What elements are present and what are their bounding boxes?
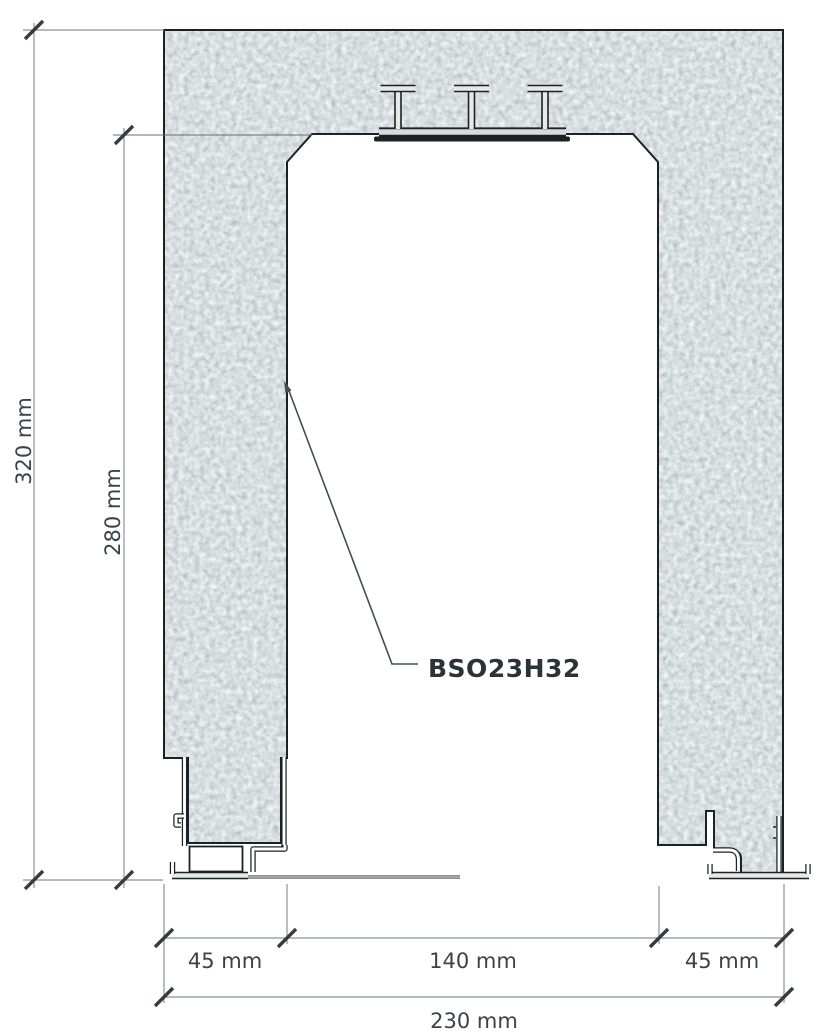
- leader-line: [286, 383, 418, 664]
- dim-label-45-left: 45 mm: [188, 949, 262, 973]
- concrete-section: [164, 30, 783, 873]
- technical-drawing-canvas: BSO23H32 320 mm 280 mm 45 mm 140 mm 45 m…: [0, 0, 831, 1036]
- anchor-rail-base-strip: [374, 137, 570, 142]
- dim-label-230: 230 mm: [430, 1009, 518, 1033]
- left-sill-chamber: [190, 847, 243, 872]
- dim-label-320: 320 mm: [12, 397, 36, 485]
- product-label: BSO23H32: [428, 654, 581, 683]
- dim-label-140: 140 mm: [429, 949, 517, 973]
- section-drawing: BSO23H32 320 mm 280 mm 45 mm 140 mm 45 m…: [0, 0, 831, 1036]
- dim-label-280: 280 mm: [101, 468, 125, 556]
- dim-label-45-right: 45 mm: [685, 949, 759, 973]
- horizontal-dimensions: 45 mm 140 mm 45 mm 230 mm: [155, 884, 793, 1033]
- concrete-texture-fill: [164, 30, 783, 873]
- product-callout: BSO23H32: [284, 381, 581, 683]
